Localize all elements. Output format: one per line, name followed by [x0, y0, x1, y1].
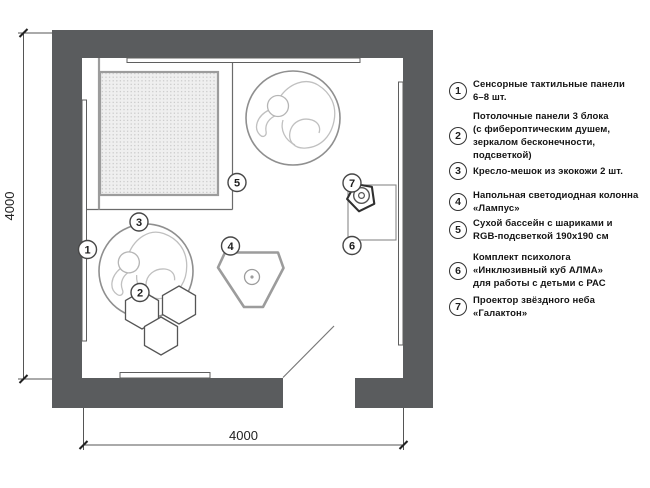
led-column — [218, 253, 284, 308]
callout-7: 7 — [343, 174, 361, 192]
svg-text:5: 5 — [234, 177, 240, 189]
door-swing-line — [283, 326, 334, 378]
callout-5: 5 — [228, 174, 246, 192]
svg-text:6: 6 — [349, 240, 355, 252]
callout-4: 4 — [222, 237, 240, 255]
floor-plan-drawing: 1 2 3 4 5 6 7 — [0, 0, 650, 488]
svg-text:1: 1 — [84, 244, 90, 256]
floor-plan-page: 1 2 3 4 5 6 7 — [0, 0, 650, 488]
dimension-height-label: 4000 — [2, 192, 17, 221]
wall-panel-right — [399, 82, 404, 345]
callout-3: 3 — [130, 213, 148, 231]
beanbag-chair-1 — [246, 71, 340, 165]
dry-pool-hatch — [100, 72, 218, 195]
wall-panel-left — [82, 100, 87, 341]
dimension-height — [18, 29, 52, 383]
callout-1: 1 — [79, 241, 97, 259]
svg-text:3: 3 — [136, 217, 142, 229]
svg-text:2: 2 — [137, 287, 143, 299]
dimension-width-label: 4000 — [229, 428, 258, 443]
wall-panel-bottom — [120, 373, 210, 379]
door-opening — [283, 377, 355, 409]
wall-panel-top — [127, 58, 360, 63]
callout-2: 2 — [131, 284, 149, 302]
svg-text:4: 4 — [227, 241, 234, 253]
svg-text:7: 7 — [349, 178, 355, 190]
callout-6: 6 — [343, 237, 361, 255]
